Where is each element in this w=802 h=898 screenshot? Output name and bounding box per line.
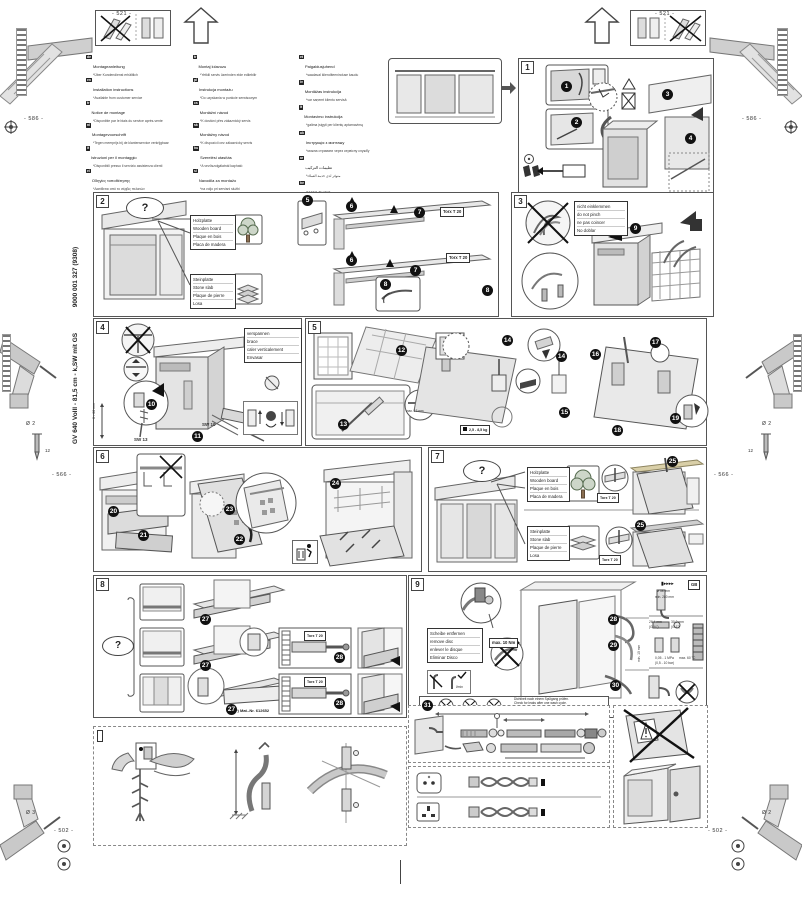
- wood-option-label: HolzplatteWooden board Plaque en boisPla…: [190, 215, 236, 250]
- step-28-row2: 28: [334, 652, 345, 663]
- panel-3-number: 3: [514, 195, 527, 208]
- language-entry: skMontážny návod*K dispozícii cez zákazn…: [193, 123, 299, 145]
- wood-option-label-7: HolzplatteWooden board Plaque en boisPla…: [527, 467, 570, 502]
- step-27-row1: 27: [200, 614, 211, 625]
- dimension-586-right: - 586 -: [742, 116, 761, 122]
- step-18: 18: [612, 425, 623, 436]
- spec-thread2b: (G 1"): [671, 625, 680, 629]
- panel-9-number: 9: [411, 578, 424, 591]
- panel-1-number: 1: [521, 61, 534, 74]
- panel-8-number: 8: [96, 578, 109, 591]
- language-entry: deMontageanleitung*Über Kundendienst erh…: [86, 55, 193, 77]
- step-27-row2: 27: [200, 660, 211, 671]
- language-column-3: etPaigaldusjuhend*saadaval klienditeenin…: [299, 55, 389, 192]
- step-9: 9: [630, 223, 641, 234]
- torx-t20-label-7a: Torx T 20: [597, 493, 619, 503]
- stone-option-label: SteinplatteStone slab Plaque de pierreLo…: [190, 274, 236, 309]
- door-warning-box: [613, 705, 708, 828]
- step-24: 24: [330, 478, 341, 489]
- panel-9-connections: 9: [408, 575, 707, 718]
- step-31: 31: [422, 700, 433, 711]
- language-entry: ltMontavimo instrukcija*galima įsigyti p…: [299, 105, 389, 127]
- language-entry: elΟδηγίες τοποθέτησης*Διατίθεται από το …: [86, 169, 193, 191]
- flow-rate-box: l/min: [427, 670, 471, 694]
- door-weight-label: 2,5 - 8,5 kg: [460, 425, 490, 435]
- language-entry: frNotice de montage*Disponible par le bi…: [86, 101, 193, 123]
- spec-thread2: 30,0 mm: [671, 620, 684, 624]
- step-13: 13: [338, 419, 349, 430]
- step-5: 5: [302, 195, 313, 206]
- corner-template-top-right: [710, 18, 802, 96]
- step-1: 1: [561, 81, 572, 92]
- step-19: 19: [670, 413, 681, 424]
- sw13-label: SW 13: [134, 437, 148, 442]
- language-entry: arتعليمات التركيب*متوفر لدى خدمة العملاء: [299, 156, 389, 178]
- range-0-60: 0 - 60 mm: [92, 403, 96, 419]
- dia2-bottom-right: Ø 2: [762, 810, 772, 816]
- dimension-521-left: - 521 -: [112, 11, 131, 17]
- language-entry: nlMontagevoorschrift*Tegen meerprijs bij…: [86, 123, 193, 145]
- step-8-inset: 8: [380, 279, 391, 290]
- ruler-mid-right: [793, 334, 802, 392]
- language-entry: csMontážní návod*K dostání přes zákaznic…: [193, 101, 299, 123]
- hose-extension-box: [408, 705, 610, 763]
- spec-min280: min. 280 mm: [655, 595, 674, 599]
- spec-temp: max. 60 °C: [679, 656, 695, 660]
- step-21: 21: [138, 530, 149, 541]
- panel-6-mount-door: 6: [93, 447, 422, 572]
- screw-icon-mid-left: [31, 432, 43, 460]
- dimension-586-left: - 586 -: [24, 116, 43, 122]
- arrow-right-icon: [502, 82, 516, 94]
- step-7-stone: 7: [410, 265, 421, 276]
- torx-t20-label-stone: Torx T 20: [446, 253, 470, 263]
- question-mark: ?: [142, 202, 149, 214]
- step-16: 16: [590, 349, 601, 360]
- step-12: 12: [396, 345, 407, 356]
- language-column-2: trMontaj kılavuzu*Yetkili servis üzerind…: [193, 55, 299, 192]
- spec-pressure2: (0,5 - 10 bar): [655, 661, 674, 665]
- step-2: 2: [571, 117, 582, 128]
- question-cloud-8: ?: [102, 636, 134, 656]
- max-13mm-label: max. 13 mm: [406, 409, 424, 413]
- language-entry: lvMontāžas instrukcija*var saņemt klient…: [299, 80, 389, 102]
- panel-1-prepare: 1: [518, 58, 714, 198]
- torx-t20-label-wood: Torx T 20: [440, 207, 464, 217]
- dimension-566-left: - 566 -: [52, 472, 71, 478]
- spec-thread1: 26,4 mm: [649, 620, 662, 624]
- step-22: 22: [234, 534, 245, 545]
- step-27-row3: 27: [226, 704, 237, 715]
- question-cloud: ?: [126, 197, 164, 219]
- step-28: 28: [608, 614, 619, 625]
- gb-see-below-icon: ▮▸▸▸▸: [661, 581, 674, 587]
- step-25-wood: 25: [667, 456, 678, 467]
- gb-ref-chip: GB: [688, 580, 700, 590]
- step-11: 11: [192, 431, 203, 442]
- spec-min10: min. 10 mm: [637, 645, 641, 662]
- step-15: 15: [559, 407, 570, 418]
- weight-icon: [463, 427, 467, 431]
- screw-icon-mid-right: [760, 432, 772, 460]
- dia2-mid-right: Ø 2: [762, 421, 772, 427]
- language-entry: huSzerelési utasítás*A vevőszolgálatnál …: [193, 146, 299, 168]
- question-cloud-7: ?: [463, 460, 501, 482]
- language-entry: etPaigaldusjuhend*saadaval klienditeenin…: [299, 55, 389, 77]
- language-entry: enInstallation instructions*Available fr…: [86, 78, 193, 100]
- weight-value: 2,5 - 8,5 kg: [469, 428, 487, 432]
- depth-12-right: 12: [748, 448, 753, 453]
- dia2-mid-left: Ø 2: [26, 421, 36, 427]
- panel-3-push-in: 3 nicht einklemmendo not: [511, 192, 714, 317]
- gb-drain-panel: [93, 726, 407, 846]
- step-30: 30: [610, 680, 621, 691]
- step-20: 20: [108, 506, 119, 517]
- panel-8-plinth: 8: [93, 575, 407, 718]
- dimension-566-right: - 566 -: [714, 472, 733, 478]
- material-number: 9000 001 327 (9308): [72, 247, 79, 307]
- language-list: deMontageanleitung*Über Kundendienst erh…: [86, 55, 430, 192]
- door-weight-icons-box: [243, 401, 298, 435]
- depth-12-left: 12: [45, 448, 50, 453]
- panel-2-worktop-type: 2: [93, 192, 499, 317]
- torx-t20-label-8a: Torx T 20: [304, 631, 326, 641]
- l-min-label: l/min: [456, 685, 463, 689]
- step-6-wood: 6: [346, 201, 357, 212]
- spec-dia38: ø 38 mm: [657, 589, 670, 593]
- model-code: GV 640 VollI - 81,5 cm - k,SW mit GS: [72, 333, 79, 444]
- panel-4-level-feet: 4 ve: [93, 318, 302, 446]
- step-23: 23: [224, 504, 235, 515]
- step-10: 10: [146, 399, 157, 410]
- step-8: 8: [482, 285, 493, 296]
- arrow-up-left: [184, 7, 218, 44]
- language-entry: ukІнструкція з монтажу*можна отримати че…: [299, 131, 389, 153]
- installation-sheet: - 521 - - 521 - - 586 - - 586 -: [0, 0, 802, 898]
- step-17: 17: [650, 337, 661, 348]
- step-25-stone: 25: [635, 520, 646, 531]
- gb-panel-label: [97, 730, 103, 742]
- dimension-521-right: - 521 -: [655, 11, 674, 17]
- brace-label: verspannenbrace caler verticalementEnvas…: [244, 328, 302, 363]
- panel-2-number: 2: [96, 195, 109, 208]
- language-entry: heהוראות הרכבה*ניתן להשיג בשירות הלקוחות: [299, 181, 389, 192]
- sw10-label: SW 10: [202, 422, 216, 427]
- dimension-502-right: - 502 -: [708, 828, 727, 834]
- fold-mark: [400, 860, 401, 884]
- dia3-bottom-left: Ø 3: [26, 810, 36, 816]
- language-column-1: deMontageanleitung*Über Kundendienst erh…: [86, 55, 193, 192]
- step-7-wood: 7: [414, 207, 425, 218]
- document-code-vertical: GV 640 VollI - 81,5 cm - k,SW mit GS 900…: [72, 247, 79, 444]
- step-14b: 14: [556, 351, 567, 362]
- step-28-row3: 28: [334, 698, 345, 709]
- step-4: 4: [685, 133, 696, 144]
- corner-template-top-left: [0, 18, 92, 96]
- language-entry: trMontaj kılavuzu*Yetkili servis üzerind…: [193, 55, 299, 77]
- language-entry: plInstrukcja montażu*Do uzyskania w punk…: [193, 78, 299, 100]
- drill-target-bottom-left: [56, 838, 72, 872]
- ruler-top-right: [777, 28, 788, 96]
- step-29: 29: [608, 640, 619, 651]
- ruler-mid-left: [2, 334, 11, 392]
- max-10nm-label: max. 10 Nm: [489, 638, 518, 648]
- drill-target-bottom-right: [730, 838, 746, 872]
- arrow-up-right: [585, 7, 619, 44]
- stone-option-label-7: SteinplatteStone slab Plaque de pierreLo…: [527, 526, 570, 561]
- drill-target-left: [4, 120, 18, 134]
- language-entry: slNavodila za montažo*na voljo pri servi…: [193, 169, 299, 191]
- language-entry: itIstruzioni per il montaggio*Disponibil…: [86, 146, 193, 168]
- torx-t20-label-8b: Torx T 20: [304, 677, 326, 687]
- ruler-top-left: [16, 28, 27, 96]
- torx-t20-label-7b: Torx T 20: [599, 555, 621, 565]
- remove-disc-label: Scheibe entfernenremove disc enlever le …: [427, 628, 483, 663]
- dimension-502-left: - 502 -: [54, 828, 73, 834]
- step-3: 3: [662, 89, 673, 100]
- panel-7-number: 7: [431, 450, 444, 463]
- do-not-pinch-label: nicht einklemmendo not pinch ne pas coin…: [574, 201, 628, 236]
- disposal-icon-box: [292, 540, 318, 564]
- eu-chip: [541, 779, 545, 786]
- mat-nr-612652: *) Mat.-Nr. 612652: [236, 708, 269, 713]
- power-cord-box: [408, 766, 610, 828]
- panel-7-fix-to-worktop: 7: [428, 447, 707, 572]
- panel-4-number: 4: [96, 321, 109, 334]
- panel-5-door-template: 5: [305, 318, 707, 446]
- step-14a: 14: [502, 335, 513, 346]
- panel-6-number: 6: [96, 450, 109, 463]
- question-mark-7: ?: [479, 465, 486, 477]
- orientation-warning-box-left: [95, 10, 171, 46]
- question-mark-8: ?: [115, 640, 121, 651]
- drill-target-right: [784, 120, 798, 134]
- step-6-stone: 6: [346, 255, 357, 266]
- panel-5-number: 5: [308, 321, 321, 334]
- spec-pressure: 0,05 - 1 MPa: [655, 656, 674, 660]
- gb-chip: [541, 809, 545, 816]
- spec-thread1b: (G ¾"): [649, 625, 659, 629]
